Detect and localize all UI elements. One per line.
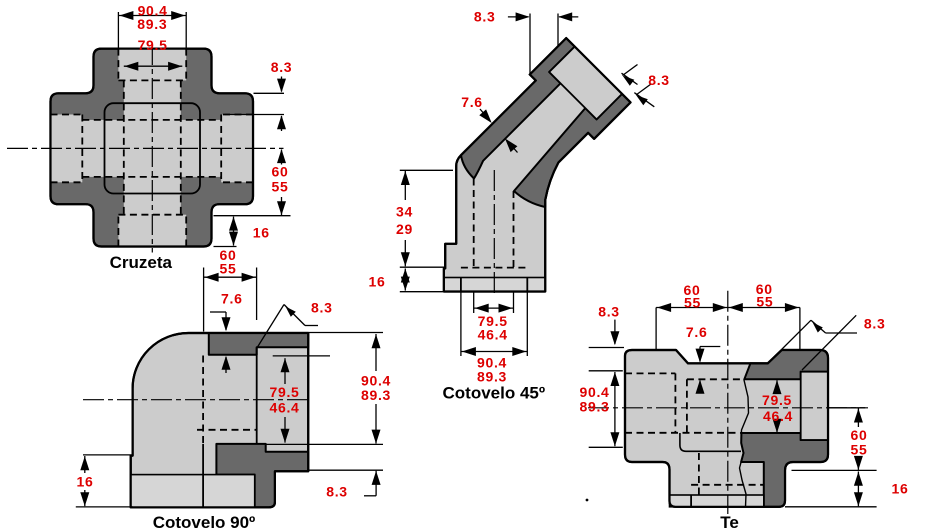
svg-text:8.3: 8.3 <box>311 300 333 316</box>
svg-text:Cotovelo 90º: Cotovelo 90º <box>153 513 256 532</box>
svg-text:46.4: 46.4 <box>478 327 508 343</box>
svg-text:8.3: 8.3 <box>648 72 670 88</box>
svg-text:55: 55 <box>756 294 773 310</box>
svg-text:16: 16 <box>369 273 386 289</box>
svg-text:89.3: 89.3 <box>361 387 391 403</box>
svg-text:16: 16 <box>253 225 270 241</box>
svg-text:Cruzeta: Cruzeta <box>110 253 173 272</box>
svg-text:7.6: 7.6 <box>686 324 708 340</box>
svg-text:60: 60 <box>272 163 289 179</box>
svg-text:79.5: 79.5 <box>269 384 299 400</box>
svg-text:89.3: 89.3 <box>137 16 167 32</box>
svg-text:8.3: 8.3 <box>326 484 348 500</box>
svg-text:55: 55 <box>220 261 237 277</box>
svg-text:46.4: 46.4 <box>269 400 299 416</box>
svg-text:8.3: 8.3 <box>598 303 620 319</box>
svg-text:89.3: 89.3 <box>579 398 609 414</box>
svg-text:79.5: 79.5 <box>138 37 168 53</box>
svg-text:7.6: 7.6 <box>461 94 483 110</box>
svg-text:29: 29 <box>396 221 413 237</box>
svg-text:55: 55 <box>851 441 868 457</box>
svg-text:8.3: 8.3 <box>271 59 293 75</box>
svg-text:Cotovelo 45º: Cotovelo 45º <box>443 384 546 403</box>
svg-text:8.3: 8.3 <box>864 315 886 331</box>
svg-text:55: 55 <box>272 178 289 194</box>
svg-text:16: 16 <box>892 481 909 497</box>
svg-text:Te: Te <box>720 513 739 532</box>
svg-text:89.3: 89.3 <box>477 368 507 384</box>
svg-text:46.4: 46.4 <box>763 408 793 424</box>
svg-text:55: 55 <box>684 295 701 311</box>
svg-text:16: 16 <box>77 473 94 489</box>
svg-text:34: 34 <box>396 204 413 220</box>
svg-text:8.3: 8.3 <box>474 8 496 24</box>
svg-text:79.5: 79.5 <box>762 392 792 408</box>
svg-text:7.6: 7.6 <box>221 291 243 307</box>
